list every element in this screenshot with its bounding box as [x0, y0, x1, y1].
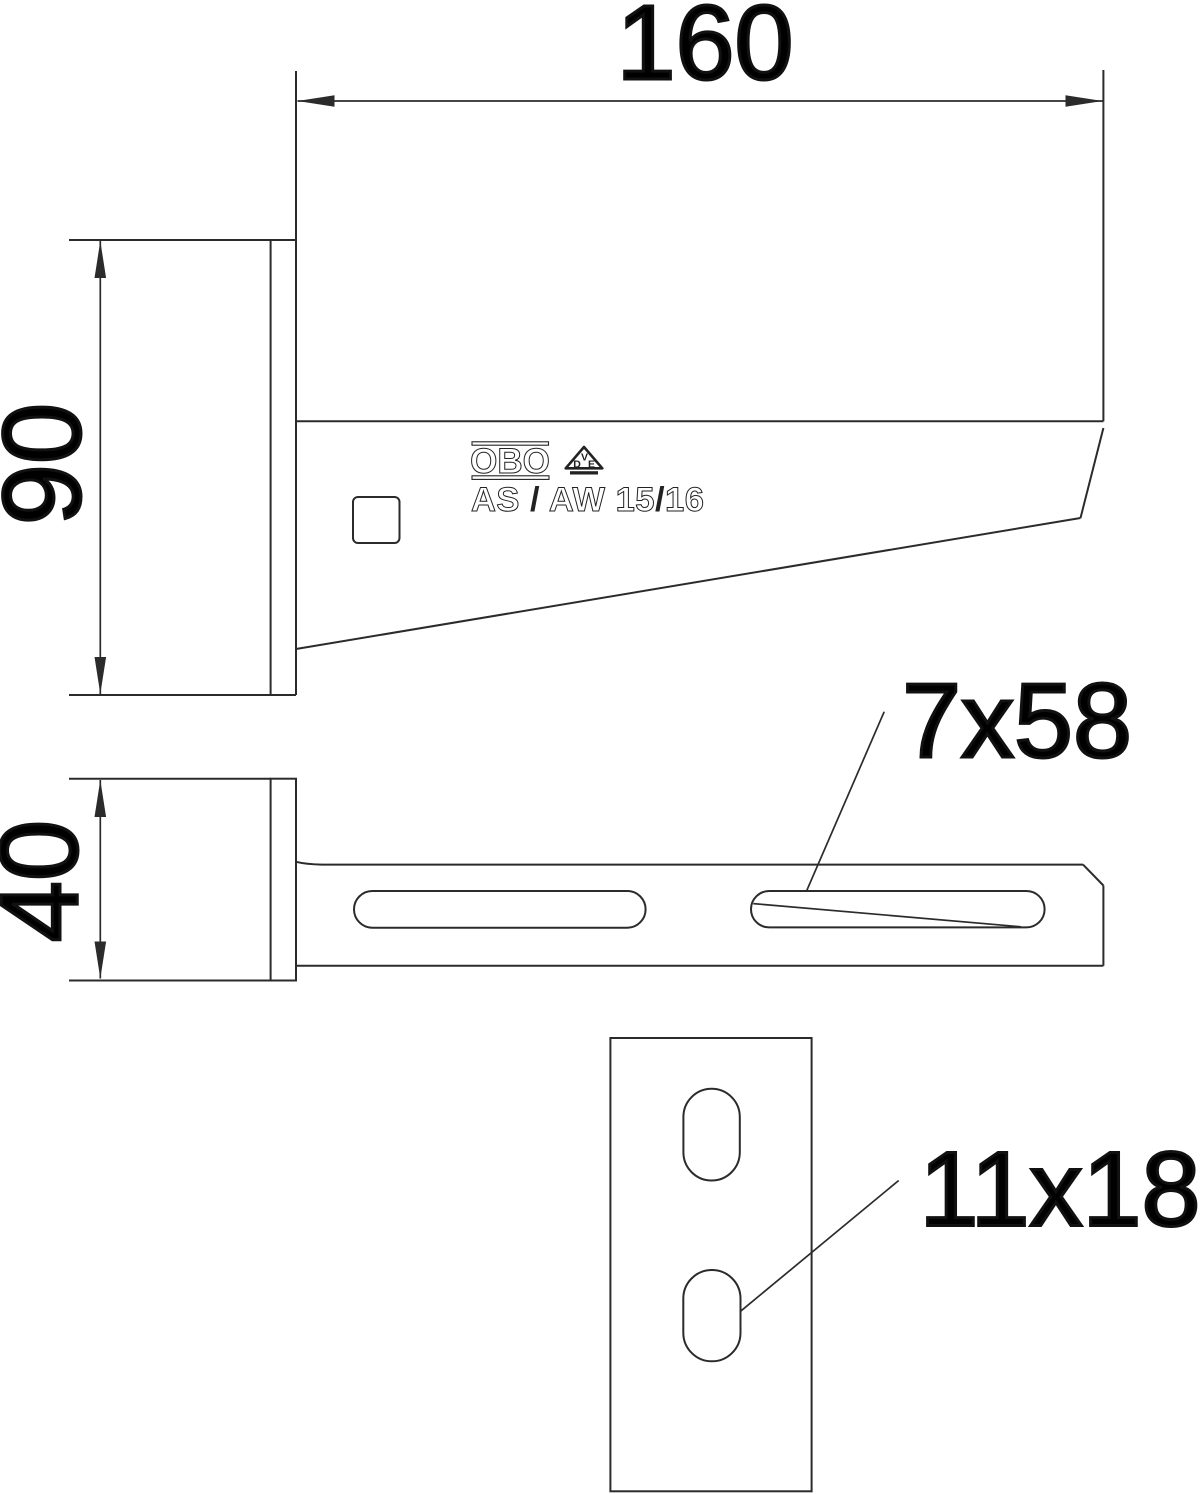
svg-text:D: D: [573, 459, 581, 471]
svg-text:V: V: [581, 452, 588, 464]
svg-text:7x58: 7x58: [902, 662, 1132, 780]
svg-text:40: 40: [0, 820, 101, 942]
svg-text:160: 160: [617, 0, 794, 102]
svg-text:OBO: OBO: [470, 442, 550, 481]
svg-text:90: 90: [0, 403, 104, 525]
svg-text:AS / AW 15/16: AS / AW 15/16: [471, 481, 704, 519]
svg-text:E: E: [588, 459, 595, 471]
svg-text:11x18: 11x18: [920, 1131, 1200, 1249]
